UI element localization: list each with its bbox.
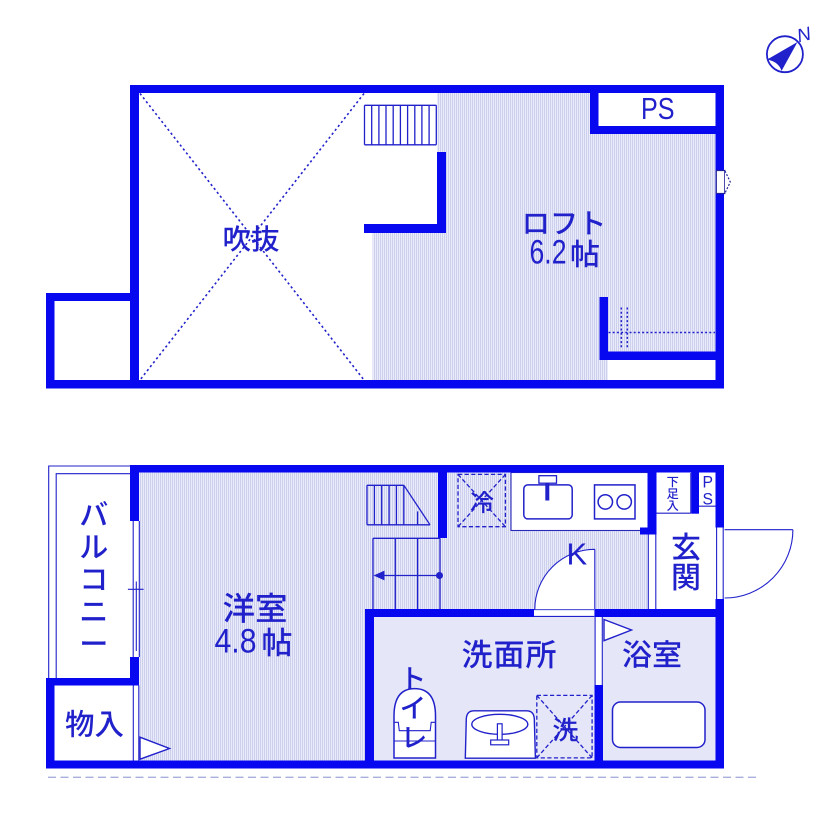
svg-text:P: P — [703, 474, 714, 492]
svg-text:4.8: 4.8 — [215, 623, 257, 661]
svg-text:6.2: 6.2 — [530, 234, 567, 272]
svg-text:K: K — [567, 537, 588, 572]
svg-text:PS: PS — [641, 91, 675, 126]
svg-text:S: S — [703, 491, 714, 509]
